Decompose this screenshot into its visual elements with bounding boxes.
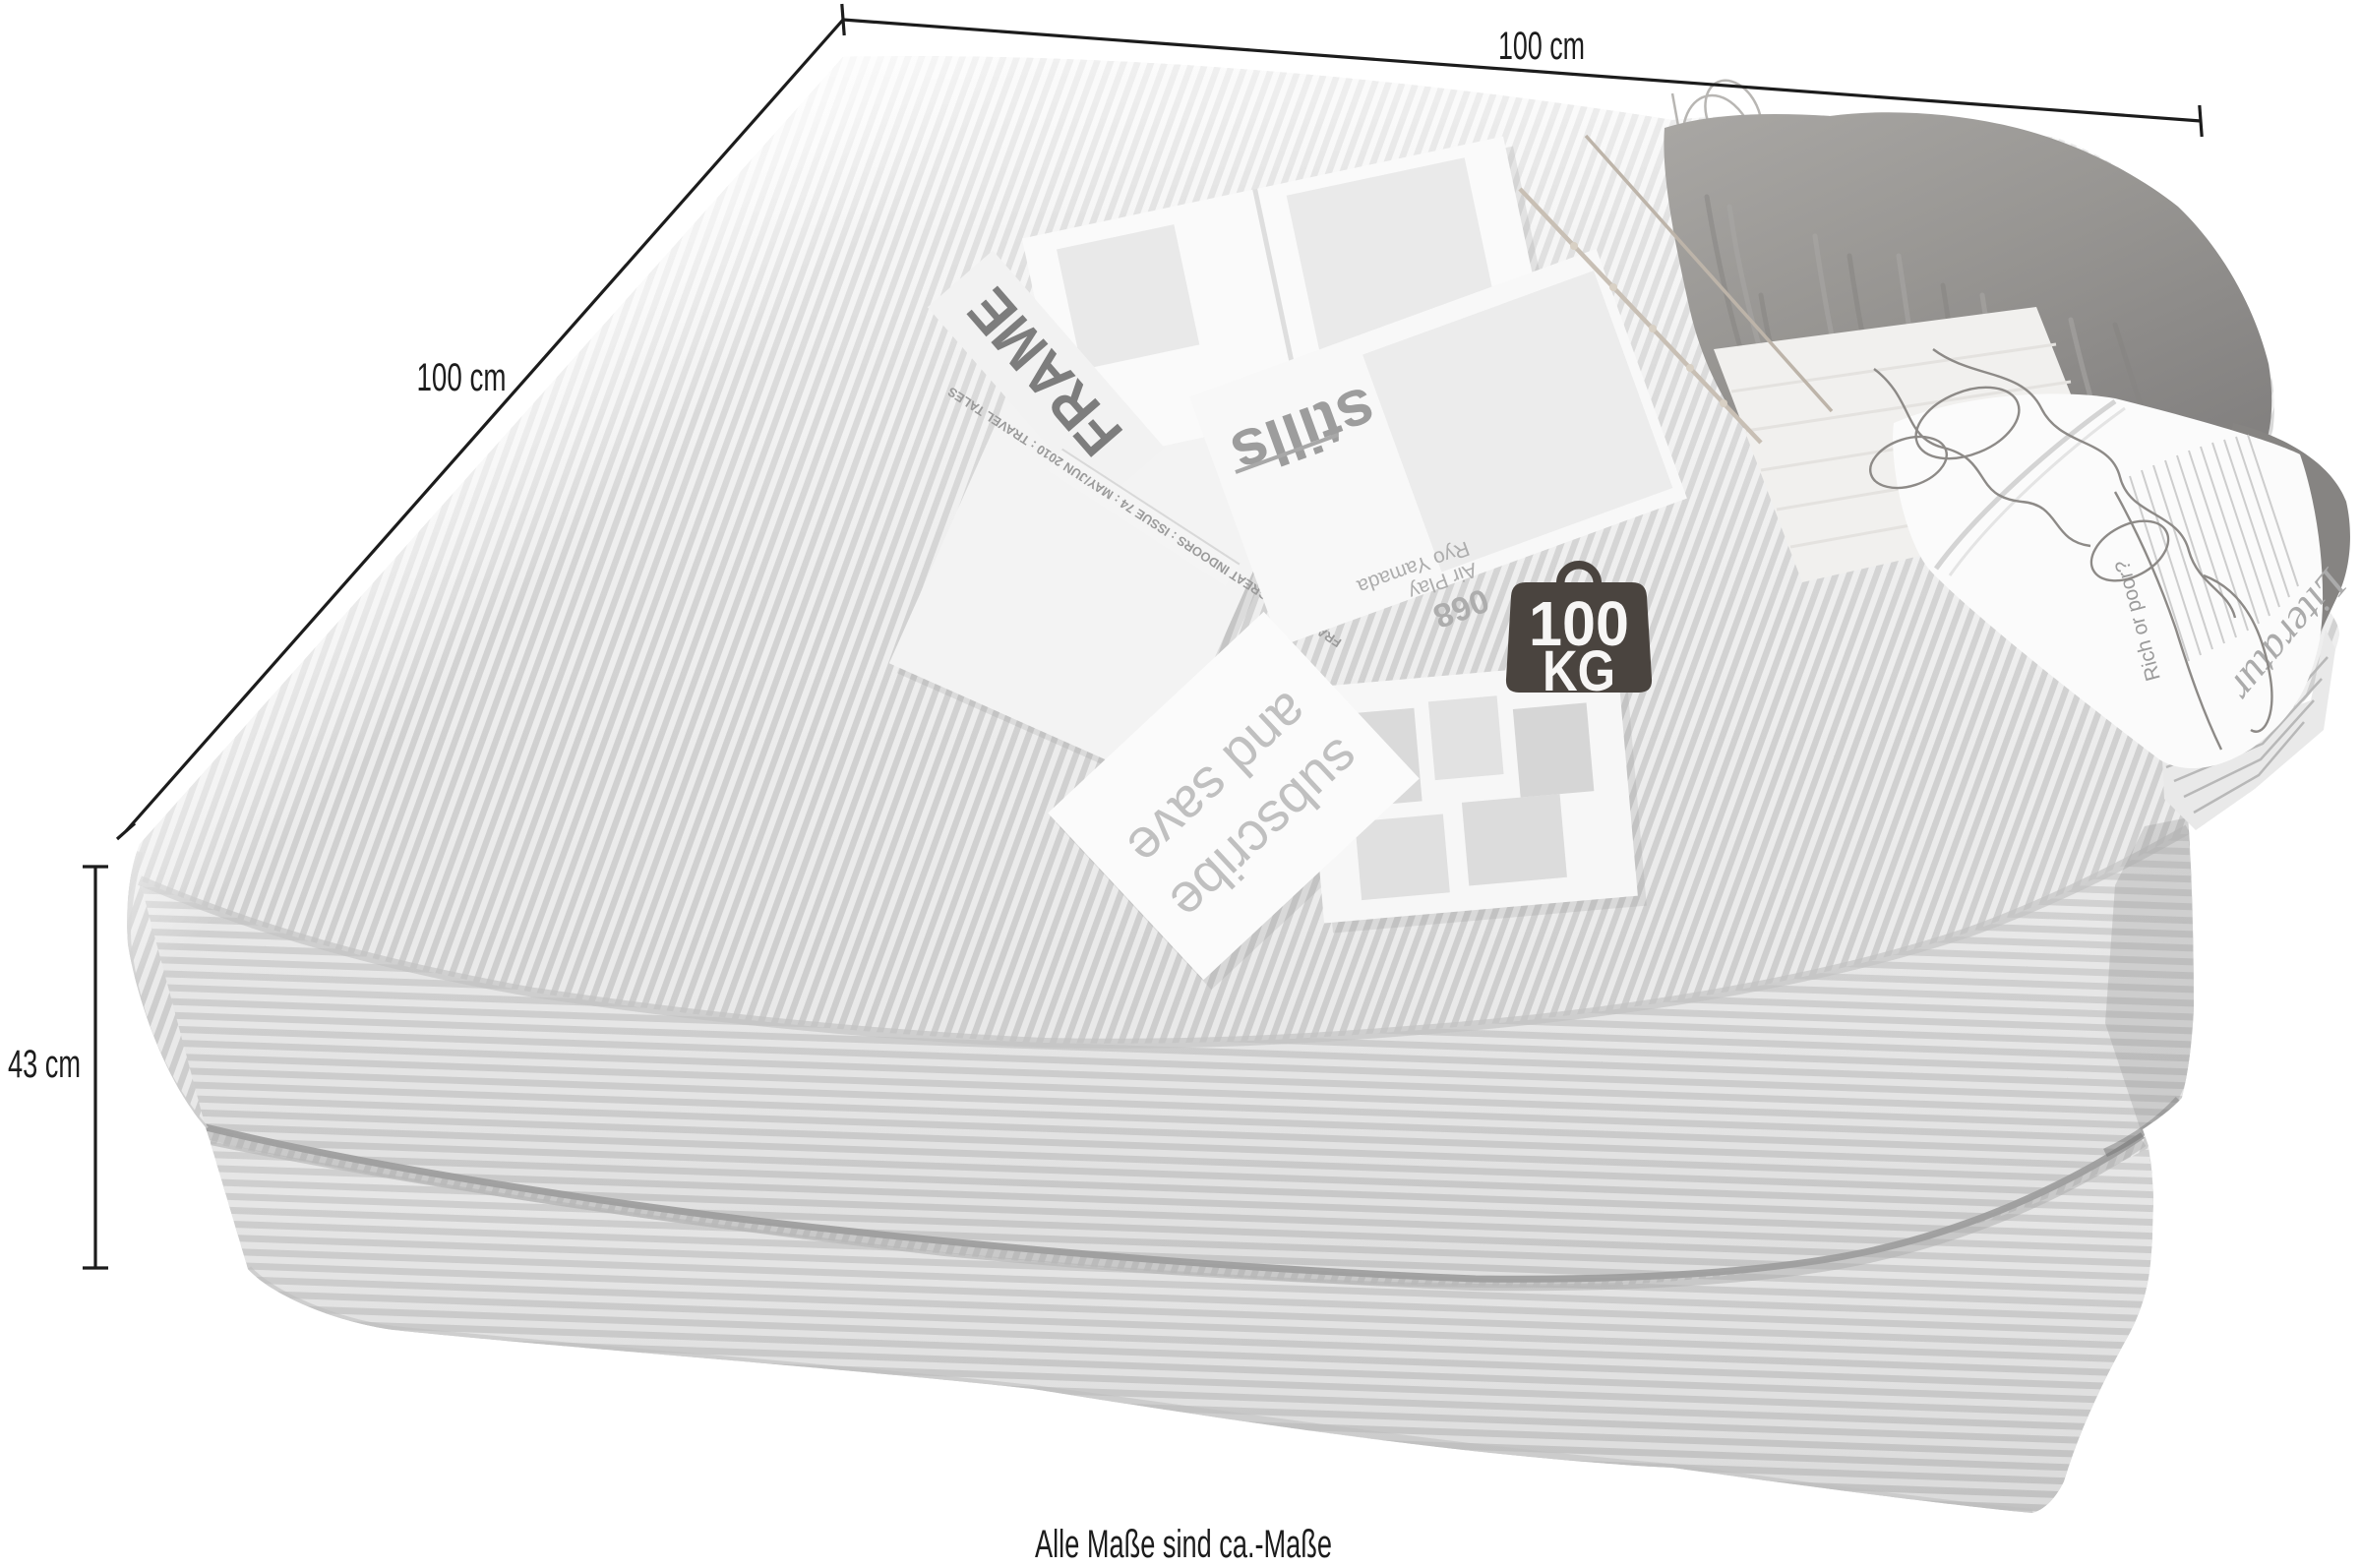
svg-text:100 cm: 100 cm (417, 356, 507, 399)
svg-text:Alle Maße sind ca.-Maße: Alle Maße sind ca.-Maße (1035, 1523, 1332, 1566)
svg-text:KG: KG (1543, 639, 1615, 703)
svg-text:43 cm: 43 cm (8, 1043, 81, 1086)
svg-text:100 cm: 100 cm (1498, 25, 1585, 68)
